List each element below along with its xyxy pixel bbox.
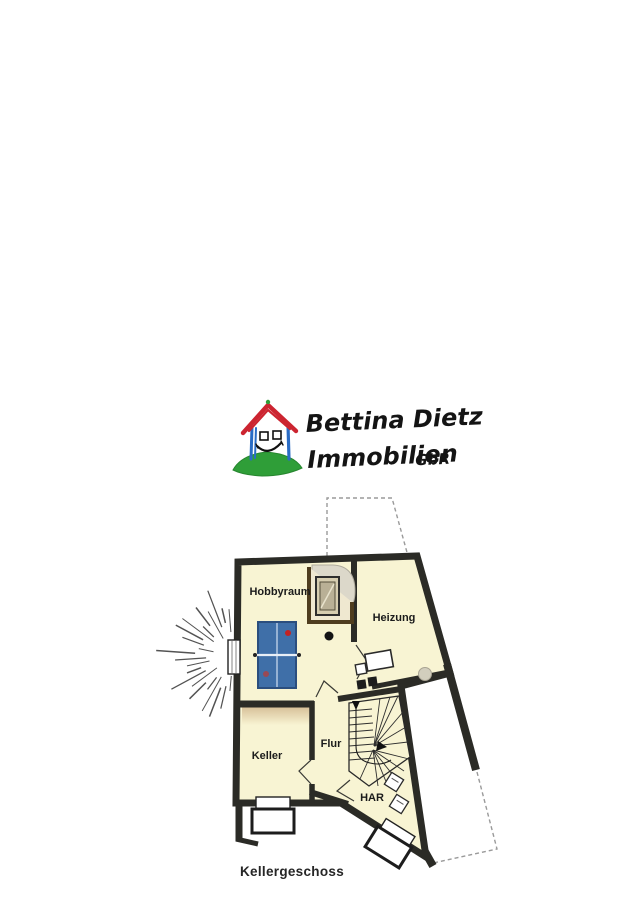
logo-house-icon (233, 400, 302, 476)
dashed-outline-top (327, 498, 408, 556)
floorplan-page: Bettina Dietz Immobilien GbR (0, 0, 636, 900)
left-wall-stub (236, 839, 258, 844)
support-column (325, 632, 334, 641)
corridor-wall-cap (424, 850, 433, 866)
corridor-outer-wall (447, 664, 476, 770)
logo-text: Bettina Dietz Immobilien GbR (305, 402, 486, 474)
dashed-outline-bottom-right (433, 772, 497, 863)
room-label-keller: Keller (252, 750, 283, 762)
room-label-flur: Flur (321, 738, 342, 750)
keller-shelf-band (242, 706, 310, 725)
logo: Bettina Dietz Immobilien GbR (233, 400, 486, 476)
floor-drain (419, 668, 432, 681)
window-keller (256, 797, 290, 809)
room-label-har: HAR (360, 792, 384, 804)
floorplan-canvas: Bettina Dietz Immobilien GbR (0, 0, 636, 900)
floor-caption: Kellergeschoss (240, 864, 344, 879)
ball (263, 671, 269, 677)
room-label-hobbyraum: Hobbyraum (249, 586, 310, 598)
table-tennis-table (253, 622, 301, 688)
logo-suffix: GbR (415, 450, 450, 469)
floorplan: Hobbyraum Heizung Keller Flur HAR (156, 498, 497, 868)
chimney-flue-block (367, 676, 377, 686)
light-well-keller (252, 809, 294, 833)
room-label-heizung: Heizung (373, 612, 416, 624)
ball (285, 630, 291, 636)
logo-line1: Bettina Dietz (305, 402, 484, 438)
window-left (228, 640, 240, 674)
chimney-flue-block (356, 679, 366, 689)
sun-rays-sketch (156, 591, 231, 717)
